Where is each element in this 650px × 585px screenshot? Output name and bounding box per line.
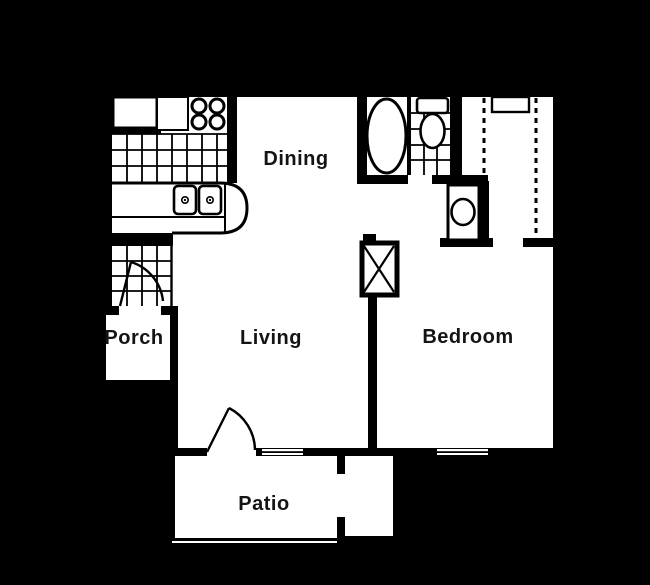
bathroom-area xyxy=(367,97,450,175)
bedroom-label: Bedroom xyxy=(422,326,513,348)
wall-porch-left-thin xyxy=(103,315,106,383)
wall-kitchen-dining-divider xyxy=(227,97,237,183)
floor-plan-page: Dining Porch Living Bedroom Patio xyxy=(0,0,650,585)
vanity-area xyxy=(448,185,479,240)
wall-exterior-right xyxy=(553,88,562,456)
vanity-sink-icon xyxy=(452,199,475,225)
wall-bathroom-bottom-left xyxy=(357,175,408,184)
wall-exterior-left xyxy=(103,88,112,315)
closet-shelf xyxy=(492,97,529,112)
dining-label: Dining xyxy=(263,148,328,170)
living-label: Living xyxy=(240,327,302,349)
wall-patio-left-thin xyxy=(172,456,175,541)
wall-living-bedroom-divider xyxy=(368,294,377,448)
wall-bathroom-left xyxy=(357,97,367,183)
kitchen-cabinet xyxy=(157,97,188,130)
bathtub-icon xyxy=(367,99,406,173)
porch-label: Porch xyxy=(104,327,163,349)
floor-plan: Dining Porch Living Bedroom Patio xyxy=(0,0,650,585)
wall-bedroom-top-right-stub xyxy=(523,238,562,247)
wall-storage-bottom xyxy=(345,536,402,543)
bedroom-window-pane-line xyxy=(437,451,488,453)
wall-storage-left-top-stub xyxy=(337,456,345,474)
wall-porch-top-left-stub xyxy=(103,306,119,315)
wall-entry-half xyxy=(103,233,173,246)
living-window-pane-line xyxy=(262,451,303,453)
wall-bathroom-right xyxy=(450,97,462,181)
tub-partition-wall xyxy=(407,97,411,175)
patio-label: Patio xyxy=(238,493,289,515)
wall-porch-bottom-thin xyxy=(103,380,178,383)
refrigerator-icon xyxy=(113,97,157,128)
water-heater-closet-icon xyxy=(362,243,397,295)
wall-patio-bottom-thin xyxy=(172,538,347,541)
toilet-icon xyxy=(417,98,448,148)
wall-storage-right xyxy=(393,456,402,543)
wall-exterior-top xyxy=(103,88,562,97)
